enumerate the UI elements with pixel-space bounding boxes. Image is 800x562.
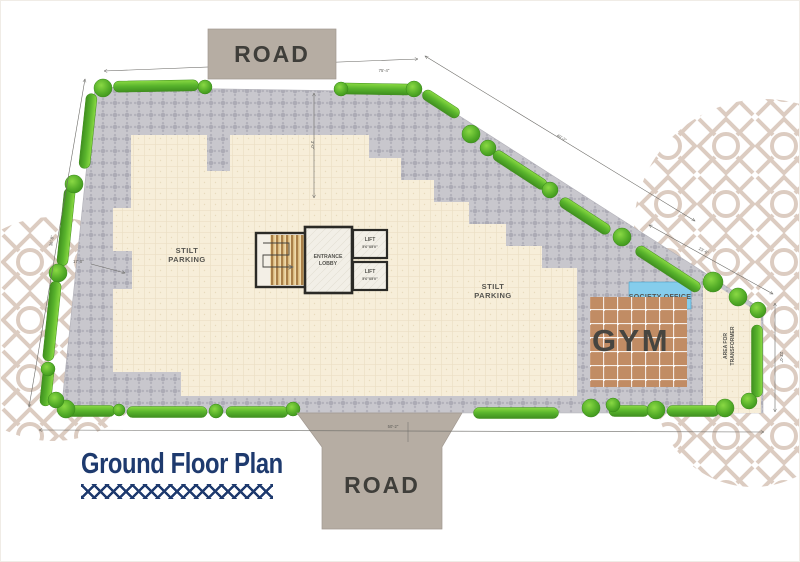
lift-bottom-label: LIFT <box>365 269 376 275</box>
title-block: Ground Floor Plan <box>81 448 341 499</box>
stilt-parking-right-label-2: PARKING <box>474 291 512 300</box>
transformer-label-2: TRANSFORMER <box>730 326 736 365</box>
floor-plan-canvas: SOCIETY OFFICE GYM ENTRANCE LOBBY LIFT 5… <box>0 0 800 562</box>
dim-top: 75'-4" <box>379 68 390 73</box>
entrance-lobby-label-1: ENTRANCE <box>314 254 343 260</box>
lift-bottom-room <box>353 262 387 290</box>
stilt-parking-left-label-1: STILT <box>176 246 199 255</box>
lift-top-label: LIFT <box>365 237 376 243</box>
lift-bottom-size: 5'6"X5'0" <box>362 277 378 281</box>
dim-setback: 3'-0" <box>310 141 315 150</box>
dim-diag-upper: 40'-2" <box>556 133 568 143</box>
road-top-label: ROAD <box>234 41 310 67</box>
transformer-label-1: AREA FOR <box>723 333 729 359</box>
road-bottom-label: ROAD <box>344 472 420 498</box>
entrance-lobby-room <box>305 227 352 293</box>
stilt-parking-left-label-2: PARKING <box>168 255 206 264</box>
stilt-parking-right-label-1: STILT <box>482 282 505 291</box>
stair-treads <box>270 235 306 285</box>
dim-bottom: 50'-2" <box>388 424 399 429</box>
dim-right: 23'-0" <box>779 352 784 363</box>
plan-title: Ground Floor Plan <box>81 448 294 481</box>
title-ornament <box>81 484 273 499</box>
lift-top-size: 5'6"X5'0" <box>362 245 378 249</box>
lift-top-room <box>353 230 387 258</box>
gym-label: GYM <box>592 323 670 358</box>
entrance-lobby-label-2: LOBBY <box>319 261 338 267</box>
paving-notch <box>113 251 132 289</box>
dim-leader: 17'-0" <box>73 259 84 264</box>
